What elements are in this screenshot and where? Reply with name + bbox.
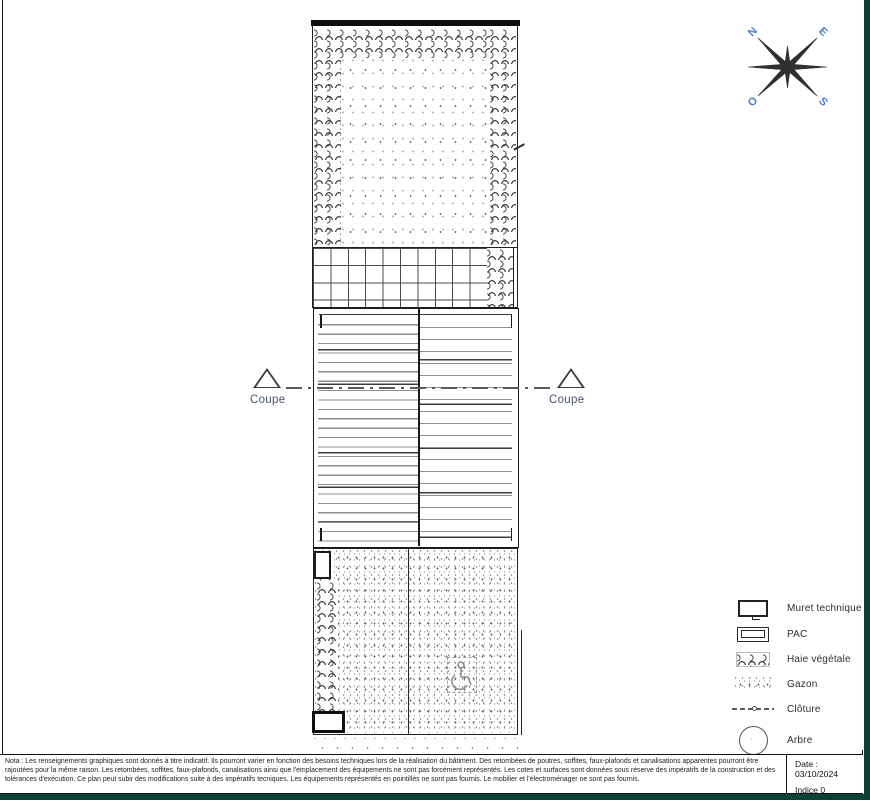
compass-east-label: E <box>816 25 830 39</box>
section-label-right: Coupe <box>549 394 584 406</box>
site-plan-sheet: N E O S Coupe Coupe <box>0 0 870 800</box>
legend-swatch-arbre: · <box>731 726 775 755</box>
section-triangle-left <box>253 368 281 388</box>
gravel-area <box>315 550 516 733</box>
legend-swatch-pac <box>731 627 775 642</box>
legend-item-muret-technique: Muret technique <box>731 600 866 617</box>
legend-label: PAC <box>787 629 807 640</box>
compass-west-label: O <box>746 94 761 109</box>
legend-item-pac: PAC <box>731 626 866 642</box>
hedge-left <box>314 28 341 245</box>
terrace-right-border <box>513 248 514 307</box>
yard-hedge-strip <box>317 581 338 711</box>
legend-swatch-gazon <box>731 677 775 691</box>
pac-unit <box>314 551 331 579</box>
pmr-parking-marker <box>447 657 477 693</box>
legend-label: Gazon <box>787 679 817 690</box>
terrace-tiles <box>313 248 487 307</box>
title-block: Nota : Les renseignements graphiques son… <box>0 754 863 794</box>
pac-inner <box>741 630 765 638</box>
legend-item-haie-vegetale: Haie végétale <box>731 651 866 667</box>
corner-tick <box>511 528 513 541</box>
nota-cell: Nota : Les renseignements graphiques son… <box>0 755 787 793</box>
sheet-edge-bottom <box>0 794 870 800</box>
legend-swatch-muret-technique <box>731 600 775 617</box>
section-label-left: Coupe <box>250 394 285 406</box>
nota-text: Nota : Les renseignements graphiques son… <box>5 758 779 785</box>
meta-cell: Date : 03/10/2024 Indice 0 <box>787 755 863 793</box>
muret-technique-block <box>312 711 345 733</box>
arbre-center-dot: · <box>751 738 755 742</box>
building-inner-top-line <box>319 314 512 315</box>
section-triangle-right-inner <box>560 371 582 387</box>
hedge-top <box>314 28 516 58</box>
legend-swatch-cloture <box>731 708 775 710</box>
indice-value: Indice 0 <box>795 785 863 795</box>
legend-label: Arbre <box>787 735 812 746</box>
lawn-area <box>341 58 490 245</box>
muret-hook <box>752 615 760 620</box>
legend-label: Clôture <box>787 704 821 715</box>
gravel-overflow <box>313 736 518 749</box>
building-roof-ridge <box>418 309 420 546</box>
legend-swatch-haie-vegetale <box>731 652 775 667</box>
legend-label: Haie végétale <box>787 654 851 665</box>
corner-tick <box>511 315 513 328</box>
cloture-post-dot <box>752 706 757 711</box>
building-roof-plan <box>313 308 519 548</box>
hedge-right <box>490 28 516 245</box>
legend-item-arbre: · Arbre <box>731 726 866 755</box>
date-value: Date : 03/10/2024 <box>795 759 863 779</box>
garden-area <box>312 26 518 247</box>
driveway-divider <box>408 549 409 734</box>
compass-rose-icon: N E O S <box>742 20 834 114</box>
legend-label: Muret technique <box>787 603 862 614</box>
sheet-border-left <box>2 0 3 794</box>
terrace-hedge-patch <box>487 248 513 307</box>
section-cut-line <box>286 387 554 389</box>
section-triangle-left-inner <box>256 371 278 387</box>
compass-north-label: N <box>746 25 760 39</box>
corner-tick <box>320 528 322 541</box>
front-yard-area <box>313 548 518 735</box>
legend-item-gazon: Gazon <box>731 676 866 692</box>
corner-tick <box>320 315 322 328</box>
legend: Muret technique PAC Haie végétale Gazon … <box>731 600 866 755</box>
section-triangle-right <box>557 368 585 388</box>
building-roof-left <box>318 316 418 542</box>
yard-right-outer-line <box>521 630 522 735</box>
terrace-area <box>312 247 518 308</box>
legend-item-cloture: Clôture <box>731 701 866 717</box>
wheelchair-symbol-icon <box>448 658 476 692</box>
building-roof-right <box>420 316 512 542</box>
compass-south-label: S <box>816 95 830 109</box>
